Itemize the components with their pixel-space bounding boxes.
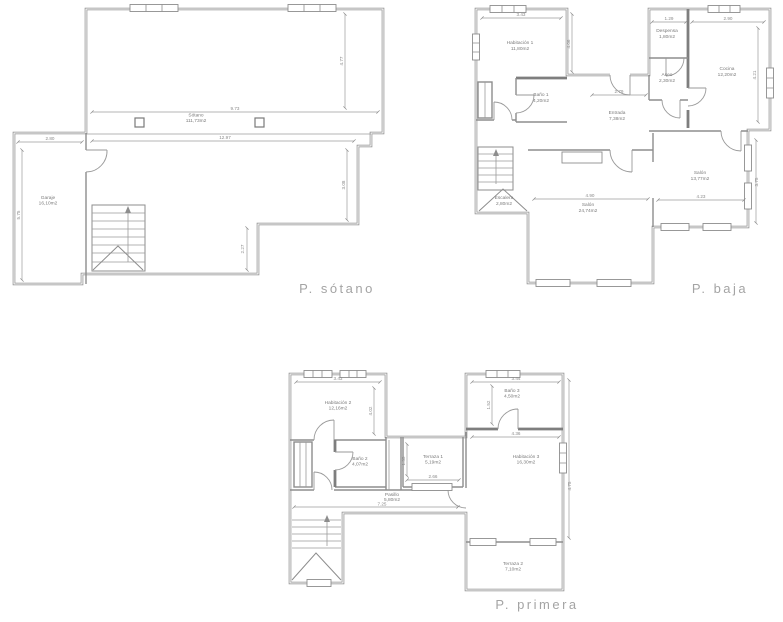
window	[307, 580, 331, 587]
fireplace	[562, 152, 602, 163]
dimension-label: 9.73	[231, 106, 240, 111]
window	[412, 484, 452, 491]
room-name-label: Escalera	[495, 195, 514, 201]
dimension-label: 4.06	[566, 39, 571, 48]
stairs-treads	[92, 213, 145, 262]
door-arc	[721, 131, 741, 151]
plan-title-primera: P. primera	[495, 597, 578, 612]
dimension-label: 2.79	[615, 89, 624, 94]
room-name-label: Garaje	[41, 195, 56, 201]
room-name-label: Baño 2	[352, 456, 368, 462]
room-area-label: 13,77m2	[691, 176, 710, 182]
room-name-label: Terraza 2	[503, 561, 523, 567]
door-arc	[86, 150, 107, 172]
window	[340, 371, 366, 378]
room-area-label: 7,10m2	[505, 567, 521, 573]
arrowhead-icon	[324, 515, 330, 522]
window	[288, 5, 336, 12]
outer-wall	[14, 9, 383, 284]
interior-wall	[528, 58, 748, 227]
dimension-label: 3.08	[341, 180, 346, 189]
dimension-label: 2.90	[724, 16, 733, 21]
door-arc	[335, 452, 353, 470]
room-name-label: Terraza 1	[423, 454, 443, 460]
window	[473, 34, 480, 60]
outer-wall-inner-line	[14, 9, 383, 284]
dimension-label: 4.77	[339, 56, 344, 65]
dimension-label: 2.66	[429, 474, 438, 479]
room-name-label: Entrada	[609, 110, 626, 116]
room-name-label: Cocina	[720, 66, 735, 72]
plan-title-baja: P. baja	[692, 281, 748, 296]
dimension-label: 2.80	[46, 136, 55, 141]
dimension-label: 4.02	[368, 406, 373, 415]
window	[536, 280, 570, 287]
room-name-label: Habitación 2	[325, 400, 352, 406]
closet-divider	[300, 442, 306, 487]
window	[745, 183, 752, 209]
dimension-label: 1.29	[665, 16, 674, 21]
dimension-label: 3.43	[517, 12, 526, 17]
door-arc	[314, 472, 332, 490]
arrowhead-icon	[125, 206, 131, 213]
column-marker	[255, 118, 264, 127]
door-arc	[610, 150, 632, 172]
room-name-label: Despensa	[656, 28, 678, 34]
door-arc	[516, 95, 534, 113]
dimension-label: 4.36	[512, 431, 521, 436]
door-arc	[314, 420, 334, 440]
dimension-label: 3.75	[754, 177, 759, 186]
door-arc	[498, 409, 518, 429]
room-area-label: 7,38m2	[609, 116, 625, 122]
dimension-label: 4.23	[697, 194, 706, 199]
room-name-label: Aseo	[662, 72, 673, 78]
room-area-label: 24,74m2	[579, 208, 598, 214]
window	[530, 539, 556, 546]
room-name-label: Salón	[694, 170, 707, 176]
room-area-label: 5,19m2	[425, 460, 441, 466]
plan-title-sotano: P. sótano	[299, 281, 375, 296]
window	[767, 68, 774, 98]
stairs-outline	[92, 205, 145, 271]
dimension-label: 4.90	[586, 193, 595, 198]
room-area-label: 4,50m2	[504, 394, 520, 400]
room-area-label: 12,16m2	[329, 406, 348, 412]
dimension-label: 4.21	[752, 70, 757, 79]
dimension-label: 2.27	[240, 244, 245, 253]
door-arc	[494, 102, 512, 120]
room-area-label: 16,10m2	[39, 201, 58, 207]
door-arc	[688, 88, 706, 106]
arrowhead-icon	[493, 149, 499, 156]
dimensions: 9.73 12.97 4.77 2.80 5.75 3.08 2.27	[16, 14, 378, 280]
room-area-label: 5,80m2	[384, 497, 400, 503]
door-arc	[448, 490, 466, 508]
room-name-label: Baño 3	[504, 388, 520, 394]
room-area-label: 4,07m2	[352, 462, 368, 468]
window	[708, 6, 740, 13]
room-area-label: 2,80m2	[496, 201, 512, 207]
column-marker	[135, 118, 144, 127]
window	[661, 224, 689, 231]
dimension-label: 12.97	[219, 135, 231, 140]
room-name-label: Habitación 1	[507, 40, 534, 46]
room-name-label: Sótano	[188, 113, 204, 119]
window	[597, 280, 631, 287]
stairs-treads	[478, 154, 513, 182]
dimension-label: 5.75	[16, 210, 21, 219]
room-area-label: 16,30m2	[517, 460, 536, 466]
stairs	[92, 205, 145, 271]
plan-primera: 3.43 4.02 2.66 1.35 3.44 1.52 4.36 4.75 …	[290, 371, 579, 613]
stairs-chevron	[292, 553, 341, 580]
window	[470, 539, 496, 546]
plan-sotano: 9.73 12.97 4.77 2.80 5.75 3.08 2.27 Sóta…	[14, 5, 383, 297]
dimension-label: 1.35	[401, 456, 406, 465]
window	[745, 145, 752, 171]
room-area-label: 11,80m2	[511, 46, 530, 52]
floor-plans-canvas: 9.73 12.97 4.77 2.80 5.75 3.08 2.27 Sóta…	[0, 0, 783, 622]
room-name-label: Salón	[582, 202, 595, 208]
window	[703, 224, 731, 231]
stairs-treads	[292, 520, 341, 548]
door-arc	[662, 100, 680, 118]
room-area-label: 1,80m2	[659, 34, 675, 40]
room-name-label: Baño 1	[533, 92, 549, 98]
room-area-label: 111,73m2	[186, 118, 207, 124]
room-area-label: 2,30m2	[659, 78, 675, 84]
plan-baja: 3.43 4.06 1.29 2.90 4.21 2.79 4.23 3.75 …	[473, 6, 774, 297]
stairs-chevron	[93, 246, 143, 270]
room-area-label: 12,20m2	[718, 72, 737, 78]
dimension-label: 4.75	[567, 481, 572, 490]
dimension-label: 3.43	[334, 376, 343, 381]
dimension-label: 3.44	[512, 376, 521, 381]
window	[560, 443, 567, 473]
stairs	[292, 515, 341, 580]
dimension-label: 1.52	[486, 400, 491, 409]
room-area-label: 4,20m2	[533, 98, 549, 104]
closet	[294, 442, 312, 487]
room-name-label: Habitación 3	[513, 454, 540, 460]
window	[130, 5, 178, 12]
floor-plan-sheet: 9.73 12.97 4.77 2.80 5.75 3.08 2.27 Sóta…	[0, 0, 783, 622]
window	[304, 371, 332, 378]
